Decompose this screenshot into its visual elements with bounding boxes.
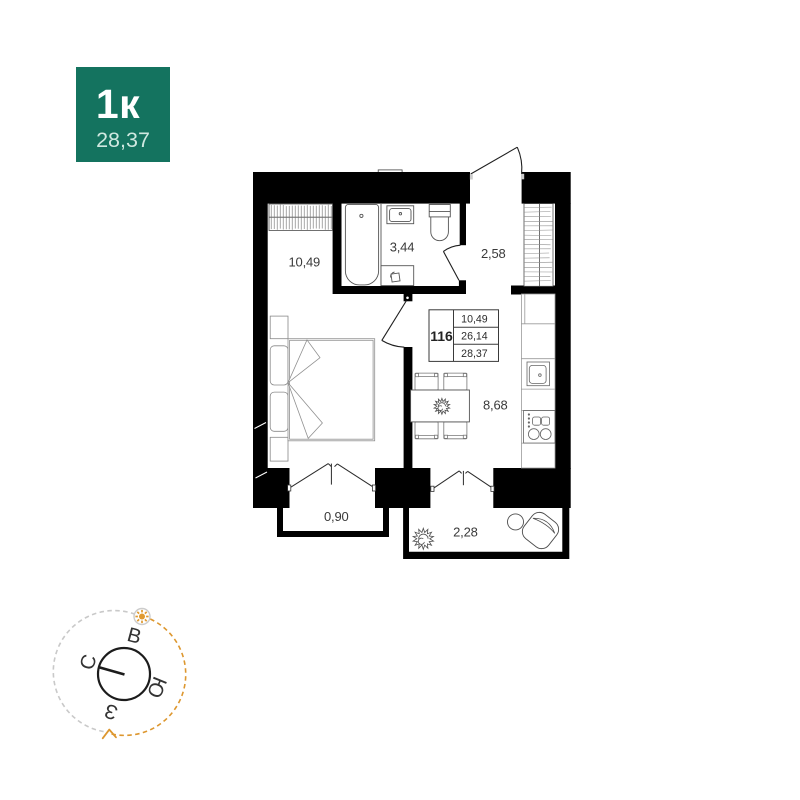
svg-text:28,37: 28,37 (96, 128, 150, 152)
svg-text:3,44: 3,44 (390, 240, 415, 255)
svg-text:28,37: 28,37 (461, 348, 488, 360)
svg-text:26,14: 26,14 (461, 331, 488, 343)
svg-text:2,28: 2,28 (453, 525, 478, 540)
svg-text:116: 116 (430, 328, 453, 344)
svg-text:2,58: 2,58 (481, 246, 506, 261)
svg-text:10,49: 10,49 (461, 313, 488, 325)
svg-text:10,49: 10,49 (289, 254, 321, 269)
svg-text:0,90: 0,90 (324, 509, 349, 524)
svg-text:1к: 1к (96, 81, 140, 127)
svg-text:8,68: 8,68 (483, 398, 508, 413)
